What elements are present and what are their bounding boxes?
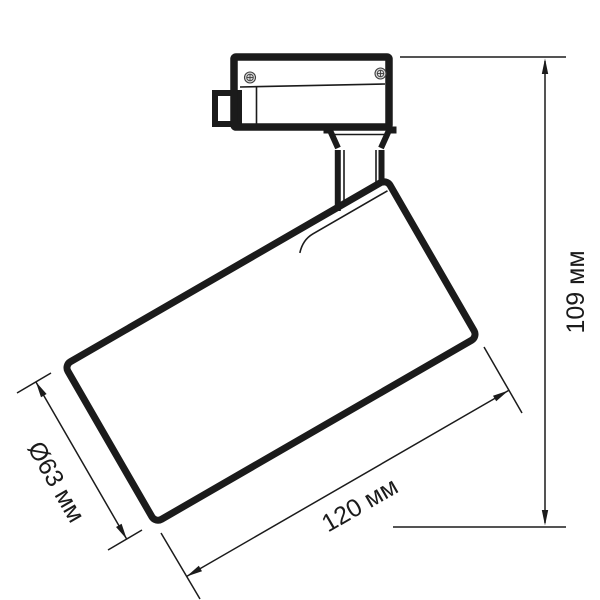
length-dimension-line bbox=[187, 391, 509, 577]
lamp-body bbox=[64, 179, 477, 523]
arrowhead-left-icon bbox=[187, 566, 203, 577]
lamp-body-outline bbox=[64, 179, 477, 523]
stem bbox=[338, 145, 382, 211]
diameter-extension-line-top bbox=[17, 373, 51, 393]
dimension-height: 109 мм bbox=[393, 57, 590, 527]
arrowhead-upleft-icon bbox=[36, 382, 47, 398]
screw-icon bbox=[245, 72, 256, 83]
dimension-label-height: 109 мм bbox=[562, 250, 590, 333]
technical-drawing-svg: 109 мм 120 мм Ø63 мм bbox=[0, 0, 600, 600]
adapter-band-line bbox=[240, 84, 385, 87]
diameter-extension-line-bottom bbox=[108, 530, 142, 550]
track-adapter bbox=[234, 57, 389, 127]
arrowhead-downright-icon bbox=[116, 524, 127, 540]
length-extension-line-right bbox=[484, 347, 522, 413]
arrowhead-right-icon bbox=[493, 391, 509, 402]
dimension-label-diameter: Ø63 мм bbox=[22, 437, 91, 528]
dimension-label-length: 120 мм bbox=[317, 472, 403, 538]
arrowhead-down-icon bbox=[542, 510, 548, 526]
screw-icon bbox=[375, 68, 386, 79]
dimension-length: 120 мм bbox=[161, 347, 522, 599]
length-extension-line-left bbox=[161, 533, 200, 599]
drawing-canvas: 109 мм 120 мм Ø63 мм bbox=[0, 0, 600, 600]
arrowhead-up-icon bbox=[542, 59, 548, 75]
